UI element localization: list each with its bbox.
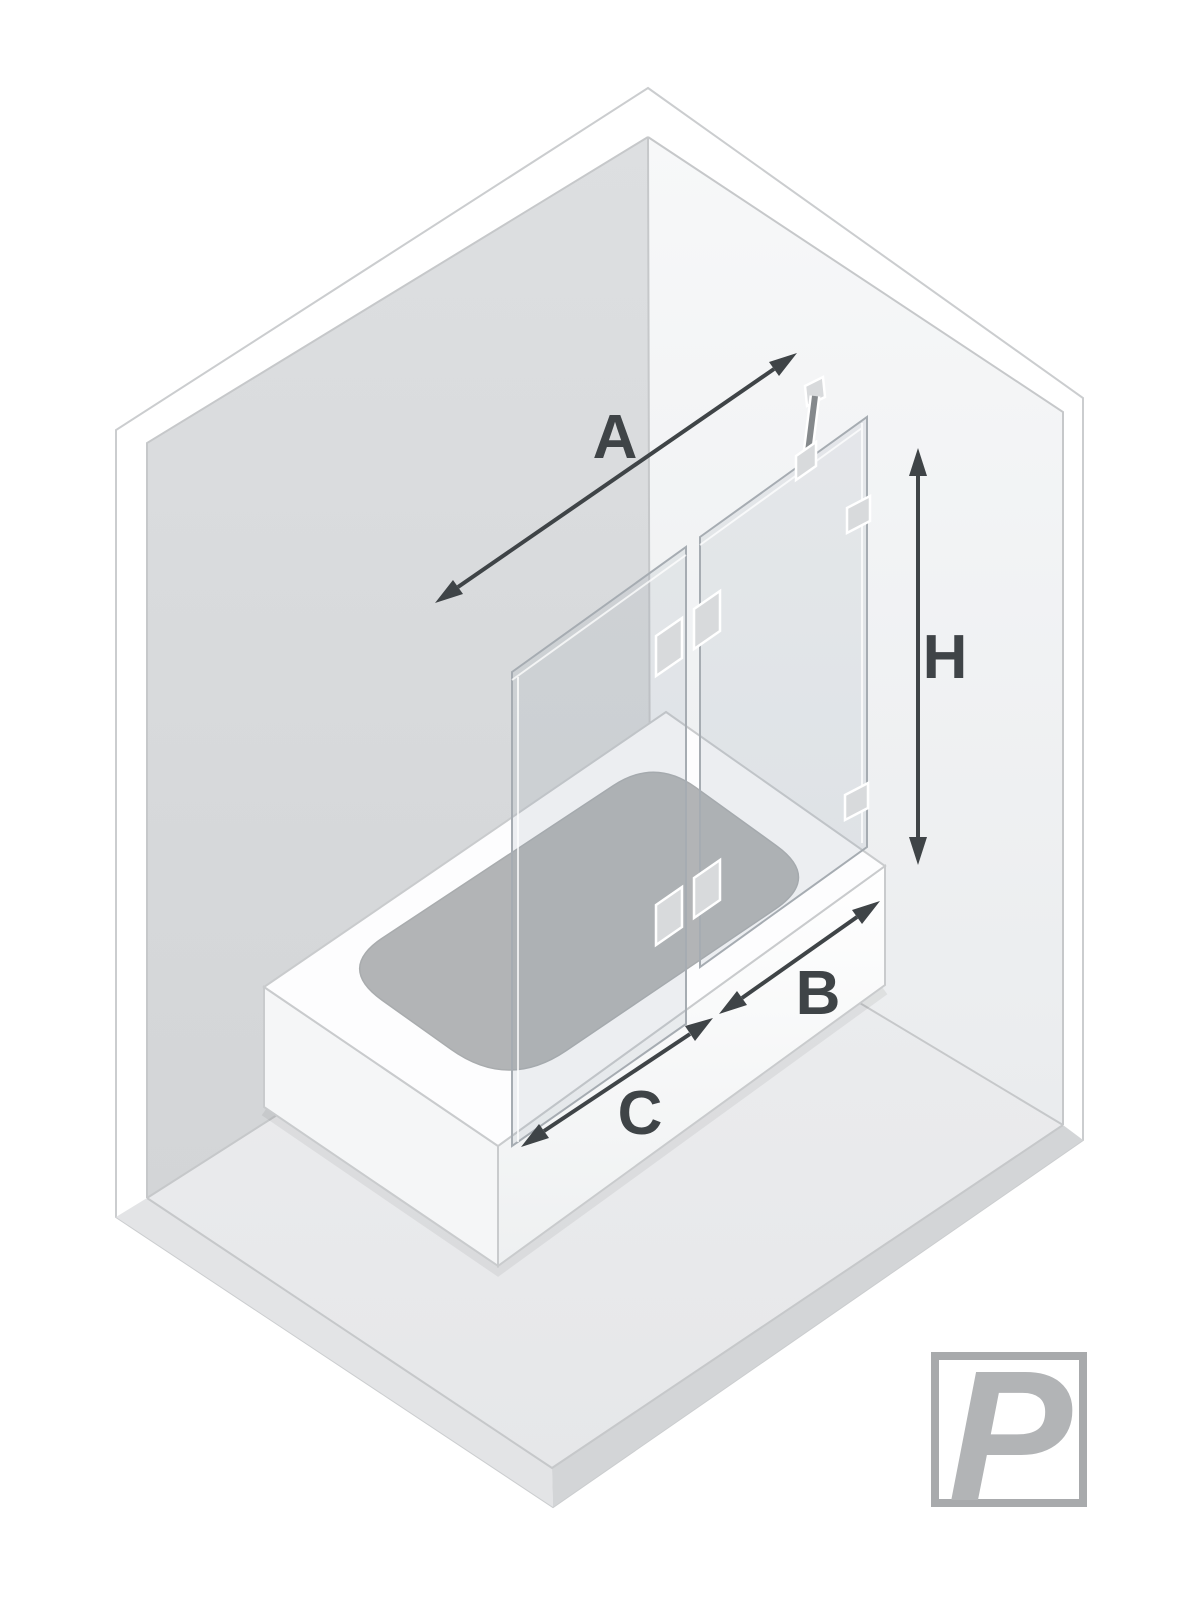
diagram-canvas: A H B C P: [0, 0, 1199, 1600]
dimension-h-label: H: [923, 623, 968, 692]
logo-badge: P: [935, 1333, 1083, 1540]
dimension-c-label: C: [618, 1079, 663, 1148]
bath-screen-dimension-diagram: A H B C P: [0, 0, 1199, 1600]
dimension-b-label: B: [796, 959, 841, 1028]
dimension-a-label: A: [593, 403, 638, 472]
logo-letter: P: [948, 1333, 1073, 1540]
